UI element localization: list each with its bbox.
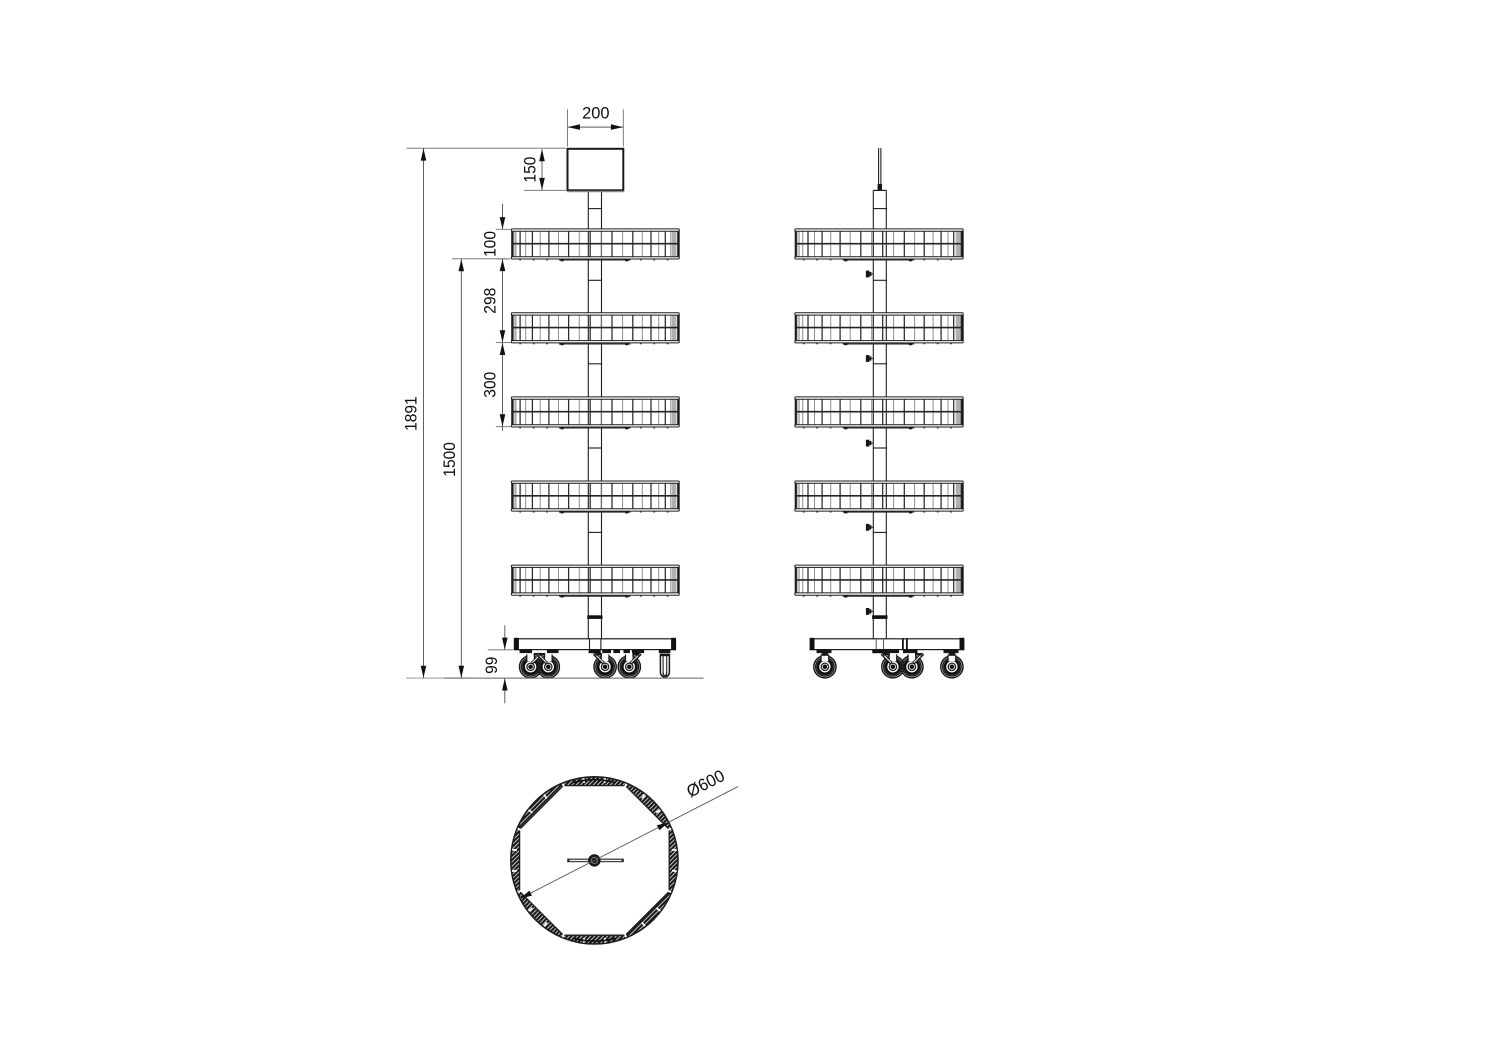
- svg-text:1500: 1500: [440, 442, 459, 477]
- svg-text:298: 298: [480, 288, 499, 314]
- svg-text:1891: 1891: [401, 396, 420, 431]
- svg-text:300: 300: [480, 372, 499, 398]
- svg-text:200: 200: [582, 103, 609, 122]
- svg-text:150: 150: [521, 157, 540, 183]
- svg-text:99: 99: [482, 657, 501, 674]
- svg-text:100: 100: [480, 231, 499, 257]
